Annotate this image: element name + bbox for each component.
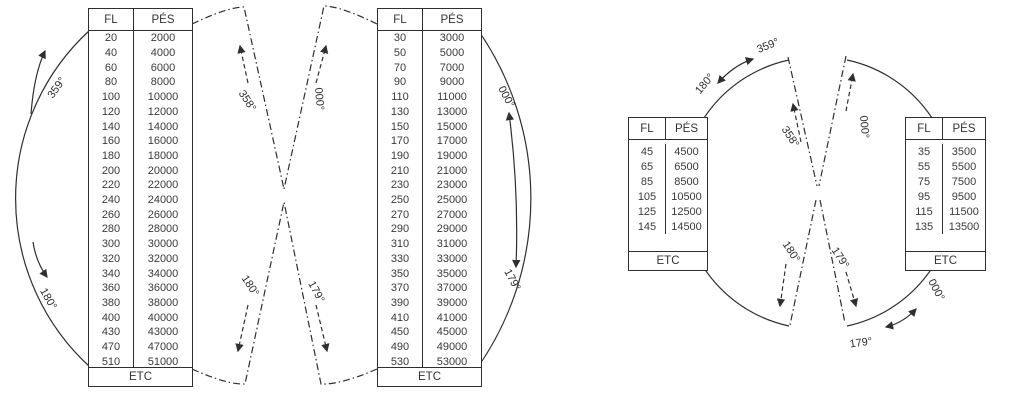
table-cell: 38000 — [134, 297, 192, 309]
table-cell: 300 — [89, 237, 134, 252]
table-cell: 4500 — [666, 146, 707, 158]
table-row: 20020000 — [89, 163, 192, 178]
table-row: 202000 — [89, 31, 192, 46]
table-cell: 490 — [378, 340, 423, 355]
table-row: 15015000 — [378, 119, 481, 134]
table-cell: 11500 — [943, 206, 985, 218]
boundary-line-top-left-2 — [788, 57, 817, 186]
table-cell: 17000 — [423, 135, 481, 147]
table-cell: 14000 — [134, 121, 192, 133]
table-row: 808000 — [89, 75, 192, 90]
table-row: 39039000 — [378, 296, 481, 311]
table-row: 606000 — [89, 60, 192, 75]
table-cell: 6000 — [134, 62, 192, 74]
table-even-levels: FL PÉS 202000404000606000808000100100001… — [88, 8, 193, 370]
etc-footer: ETC — [88, 367, 193, 387]
table-cell: 41000 — [423, 312, 481, 324]
left-outer-arc-east — [478, 30, 531, 367]
table-row: 16016000 — [89, 134, 192, 149]
table-body: 3030005050007070009090001101100013013000… — [378, 31, 481, 369]
table-row: 18018000 — [89, 149, 192, 164]
col-header-fl: FL — [378, 9, 423, 30]
col-header-pes: PÉS — [666, 123, 707, 135]
table-cell: 25000 — [423, 194, 481, 206]
table-row: 12012000 — [89, 105, 192, 120]
track-arrow-358 — [240, 46, 248, 83]
table-cell: 6500 — [666, 161, 707, 173]
table-cell: 320 — [89, 252, 134, 267]
etc-footer: ETC — [905, 251, 986, 271]
table-cell: 90 — [378, 75, 423, 90]
table-cell: 11000 — [423, 91, 481, 103]
table-cell: 29000 — [423, 223, 481, 235]
col-header-fl: FL — [906, 118, 943, 139]
table-cell: 2000 — [134, 32, 192, 44]
table-row: 27027000 — [378, 207, 481, 222]
table-cell: 30 — [378, 31, 423, 46]
table-cell: 53000 — [423, 356, 481, 368]
table-row: 22022000 — [89, 178, 192, 193]
table-cell: 220 — [89, 178, 134, 193]
table-row: 14514500 — [629, 219, 707, 234]
table-cell: 20 — [89, 31, 134, 46]
track-arrow-000 — [316, 46, 326, 83]
table-cell: 250 — [378, 193, 423, 208]
table-row: 47047000 — [89, 340, 192, 355]
col-header-fl: FL — [629, 118, 666, 139]
table-row: 656500 — [629, 159, 707, 174]
table-row: 43043000 — [89, 325, 192, 340]
table-header: FL PÉS — [378, 9, 481, 31]
table-cell: 180 — [89, 149, 134, 164]
table-cell: 9500 — [943, 191, 985, 203]
table-cell: 15000 — [423, 121, 481, 133]
table-cell: 51000 — [134, 356, 192, 368]
boundary-line-bottom-right — [284, 202, 377, 384]
table-cell: 75 — [906, 174, 943, 189]
table-cell: 10500 — [666, 191, 707, 203]
table-cell: 400 — [89, 310, 134, 325]
etc-footer: ETC — [628, 251, 708, 271]
table-row: 454500 — [629, 144, 707, 159]
boundary-line-top-right — [284, 6, 377, 189]
table-row: 17017000 — [378, 134, 481, 149]
table-row: 10010000 — [89, 90, 192, 105]
table-row: 10510500 — [629, 189, 707, 204]
table-cell: 430 — [89, 325, 134, 340]
table-header: FL PÉS — [629, 118, 707, 140]
table-row: 21021000 — [378, 163, 481, 178]
etc-footer: ETC — [377, 367, 482, 387]
table-cell: 260 — [89, 207, 134, 222]
table-row: 11511500 — [906, 204, 985, 219]
table-row: 14014000 — [89, 119, 192, 134]
table-cell: 150 — [378, 119, 423, 134]
table-cell: 360 — [89, 281, 134, 296]
table-cell: 24000 — [134, 194, 192, 206]
table-cell: 280 — [89, 222, 134, 237]
table-cell: 28000 — [134, 223, 192, 235]
track-arrow-179 — [316, 305, 327, 351]
table-row: 40040000 — [89, 310, 192, 325]
table-row: 404000 — [89, 46, 192, 61]
table-cell: 70 — [378, 60, 423, 75]
table-cell: 105 — [629, 189, 666, 204]
table-cell: 240 — [89, 193, 134, 208]
table-cell: 310 — [378, 237, 423, 252]
boundary-line-bottom-left — [192, 202, 284, 384]
table-cell: 40000 — [134, 312, 192, 324]
table-row: 12512500 — [629, 204, 707, 219]
table-cell: 13000 — [423, 106, 481, 118]
table-cell: 370 — [378, 281, 423, 296]
table-cell: 32000 — [134, 253, 192, 265]
table-cell: 3500 — [943, 146, 985, 158]
table-cell: 14500 — [666, 221, 707, 233]
table-cell: 350 — [378, 266, 423, 281]
table-row: 30030000 — [89, 237, 192, 252]
col-header-fl: FL — [89, 9, 134, 30]
table-cell: 7500 — [943, 176, 985, 188]
table-row: 303000 — [378, 31, 481, 46]
table-row: 11011000 — [378, 90, 481, 105]
table-header: FL PÉS — [89, 9, 192, 31]
track-arrow-000-2 — [846, 74, 853, 111]
table-cell: 170 — [378, 134, 423, 149]
table-cell: 12500 — [666, 206, 707, 218]
table-even-plus500: FL PÉS 454500656500858500105105001251250… — [628, 117, 708, 254]
table-odd-levels: FL PÉS 303000505000707000909000110110001… — [377, 8, 482, 370]
col-header-pes: PÉS — [423, 14, 481, 26]
table-cell: 16000 — [134, 135, 192, 147]
table-cell: 23000 — [423, 179, 481, 191]
table-row: 555500 — [906, 159, 985, 174]
table-cell: 10000 — [134, 91, 192, 103]
table-cell: 45000 — [423, 326, 481, 338]
track-arrow-180 — [238, 305, 248, 351]
table-cell: 12000 — [134, 106, 192, 118]
table-cell: 36000 — [134, 282, 192, 294]
range-arrow-359 — [31, 51, 45, 114]
table-cell: 21000 — [423, 165, 481, 177]
table-cell: 470 — [89, 340, 134, 355]
table-row: 19019000 — [378, 149, 481, 164]
table-row: 353500 — [906, 144, 985, 159]
table-cell: 115 — [906, 204, 943, 219]
table-row: 25025000 — [378, 193, 481, 208]
table-cell: 145 — [629, 219, 666, 234]
table-cell: 110 — [378, 90, 423, 105]
table-body: 4545006565008585001051050012512500145145… — [629, 140, 707, 253]
table-cell: 4000 — [134, 47, 192, 59]
range-arrow-180 — [33, 242, 47, 277]
table-row: 37037000 — [378, 281, 481, 296]
table-row: 34034000 — [89, 266, 192, 281]
table-cell: 200 — [89, 163, 134, 178]
table-cell: 130 — [378, 105, 423, 120]
table-row: 757500 — [906, 174, 985, 189]
table-cell: 8500 — [666, 176, 707, 188]
table-cell: 125 — [629, 204, 666, 219]
table-cell: 210 — [378, 163, 423, 178]
table-cell: 230 — [378, 178, 423, 193]
table-cell: 18000 — [134, 150, 192, 162]
table-cell: 50 — [378, 46, 423, 61]
table-row: 23023000 — [378, 178, 481, 193]
table-cell: 40 — [89, 46, 134, 61]
table-row: 909000 — [378, 75, 481, 90]
table-cell: 60 — [89, 60, 134, 75]
table-cell: 26000 — [134, 209, 192, 221]
table-cell: 380 — [89, 296, 134, 311]
table-row: 26026000 — [89, 207, 192, 222]
range-arrow-180-359 — [718, 59, 753, 83]
table-cell: 5500 — [943, 161, 985, 173]
heading-label-000-inner: 000° — [312, 87, 326, 111]
table-row: 13513500 — [906, 219, 985, 234]
col-header-pes: PÉS — [134, 14, 192, 26]
cruising-levels-diagram: FL PÉS 202000404000606000808000100100001… — [0, 0, 1024, 403]
table-header: FL PÉS — [906, 118, 985, 140]
table-cell: 390 — [378, 296, 423, 311]
table-odd-plus500: FL PÉS 353500555500757500959500115115001… — [905, 117, 986, 254]
table-row: 35035000 — [378, 266, 481, 281]
table-row: 13013000 — [378, 105, 481, 120]
table-cell: 35 — [906, 144, 943, 159]
col-header-pes: PÉS — [943, 123, 985, 135]
table-row: 505000 — [378, 46, 481, 61]
table-row: 858500 — [629, 174, 707, 189]
range-arrow-179-000 — [886, 309, 916, 327]
table-cell: 45 — [629, 144, 666, 159]
left-outer-arc-west — [16, 30, 90, 367]
table-row: 33033000 — [378, 252, 481, 267]
track-arrow-179-2 — [846, 272, 856, 306]
table-cell: 270 — [378, 207, 423, 222]
table-cell: 39000 — [423, 297, 481, 309]
table-cell: 13500 — [943, 221, 985, 233]
track-arrow-180-2 — [780, 264, 786, 306]
table-row: 28028000 — [89, 222, 192, 237]
table-row: 45045000 — [378, 325, 481, 340]
table-row: 32032000 — [89, 252, 192, 267]
table-cell: 330 — [378, 252, 423, 267]
table-cell: 9000 — [423, 76, 481, 88]
table-cell: 450 — [378, 325, 423, 340]
table-cell: 20000 — [134, 165, 192, 177]
table-cell: 290 — [378, 222, 423, 237]
table-cell: 47000 — [134, 341, 192, 353]
heading-label-000-inner-2: 000° — [857, 115, 871, 139]
table-cell: 19000 — [423, 150, 481, 162]
table-cell: 140 — [89, 119, 134, 134]
table-cell: 7000 — [423, 62, 481, 74]
table-cell: 95 — [906, 189, 943, 204]
table-cell: 65 — [629, 159, 666, 174]
table-body: 2020004040006060008080001001000012012000… — [89, 31, 192, 369]
table-cell: 49000 — [423, 341, 481, 353]
table-row: 24024000 — [89, 193, 192, 208]
table-cell: 55 — [906, 159, 943, 174]
table-cell: 30000 — [134, 238, 192, 250]
table-cell: 3000 — [423, 32, 481, 44]
table-cell: 120 — [89, 105, 134, 120]
range-arrow-000-179 — [509, 113, 517, 267]
table-cell: 37000 — [423, 282, 481, 294]
table-cell: 8000 — [134, 76, 192, 88]
table-cell: 27000 — [423, 209, 481, 221]
table-row: 36036000 — [89, 281, 192, 296]
table-cell: 34000 — [134, 268, 192, 280]
table-cell: 80 — [89, 75, 134, 90]
table-cell: 190 — [378, 149, 423, 164]
table-cell: 100 — [89, 90, 134, 105]
table-row: 707000 — [378, 60, 481, 75]
table-cell: 85 — [629, 174, 666, 189]
table-cell: 43000 — [134, 326, 192, 338]
table-cell: 135 — [906, 219, 943, 234]
table-cell: 5000 — [423, 47, 481, 59]
table-cell: 33000 — [423, 253, 481, 265]
table-row: 38038000 — [89, 296, 192, 311]
boundary-line-top-right-2 — [819, 56, 846, 186]
table-row: 959500 — [906, 189, 985, 204]
table-cell: 340 — [89, 266, 134, 281]
table-row: 49049000 — [378, 340, 481, 355]
table-cell: 35000 — [423, 268, 481, 280]
table-row: 41041000 — [378, 310, 481, 325]
table-cell: 22000 — [134, 179, 192, 191]
table-row: 31031000 — [378, 237, 481, 252]
table-cell: 31000 — [423, 238, 481, 250]
table-row: 29029000 — [378, 222, 481, 237]
table-cell: 410 — [378, 310, 423, 325]
table-cell: 160 — [89, 134, 134, 149]
table-body: 3535005555007575009595001151150013513500 — [906, 140, 985, 253]
